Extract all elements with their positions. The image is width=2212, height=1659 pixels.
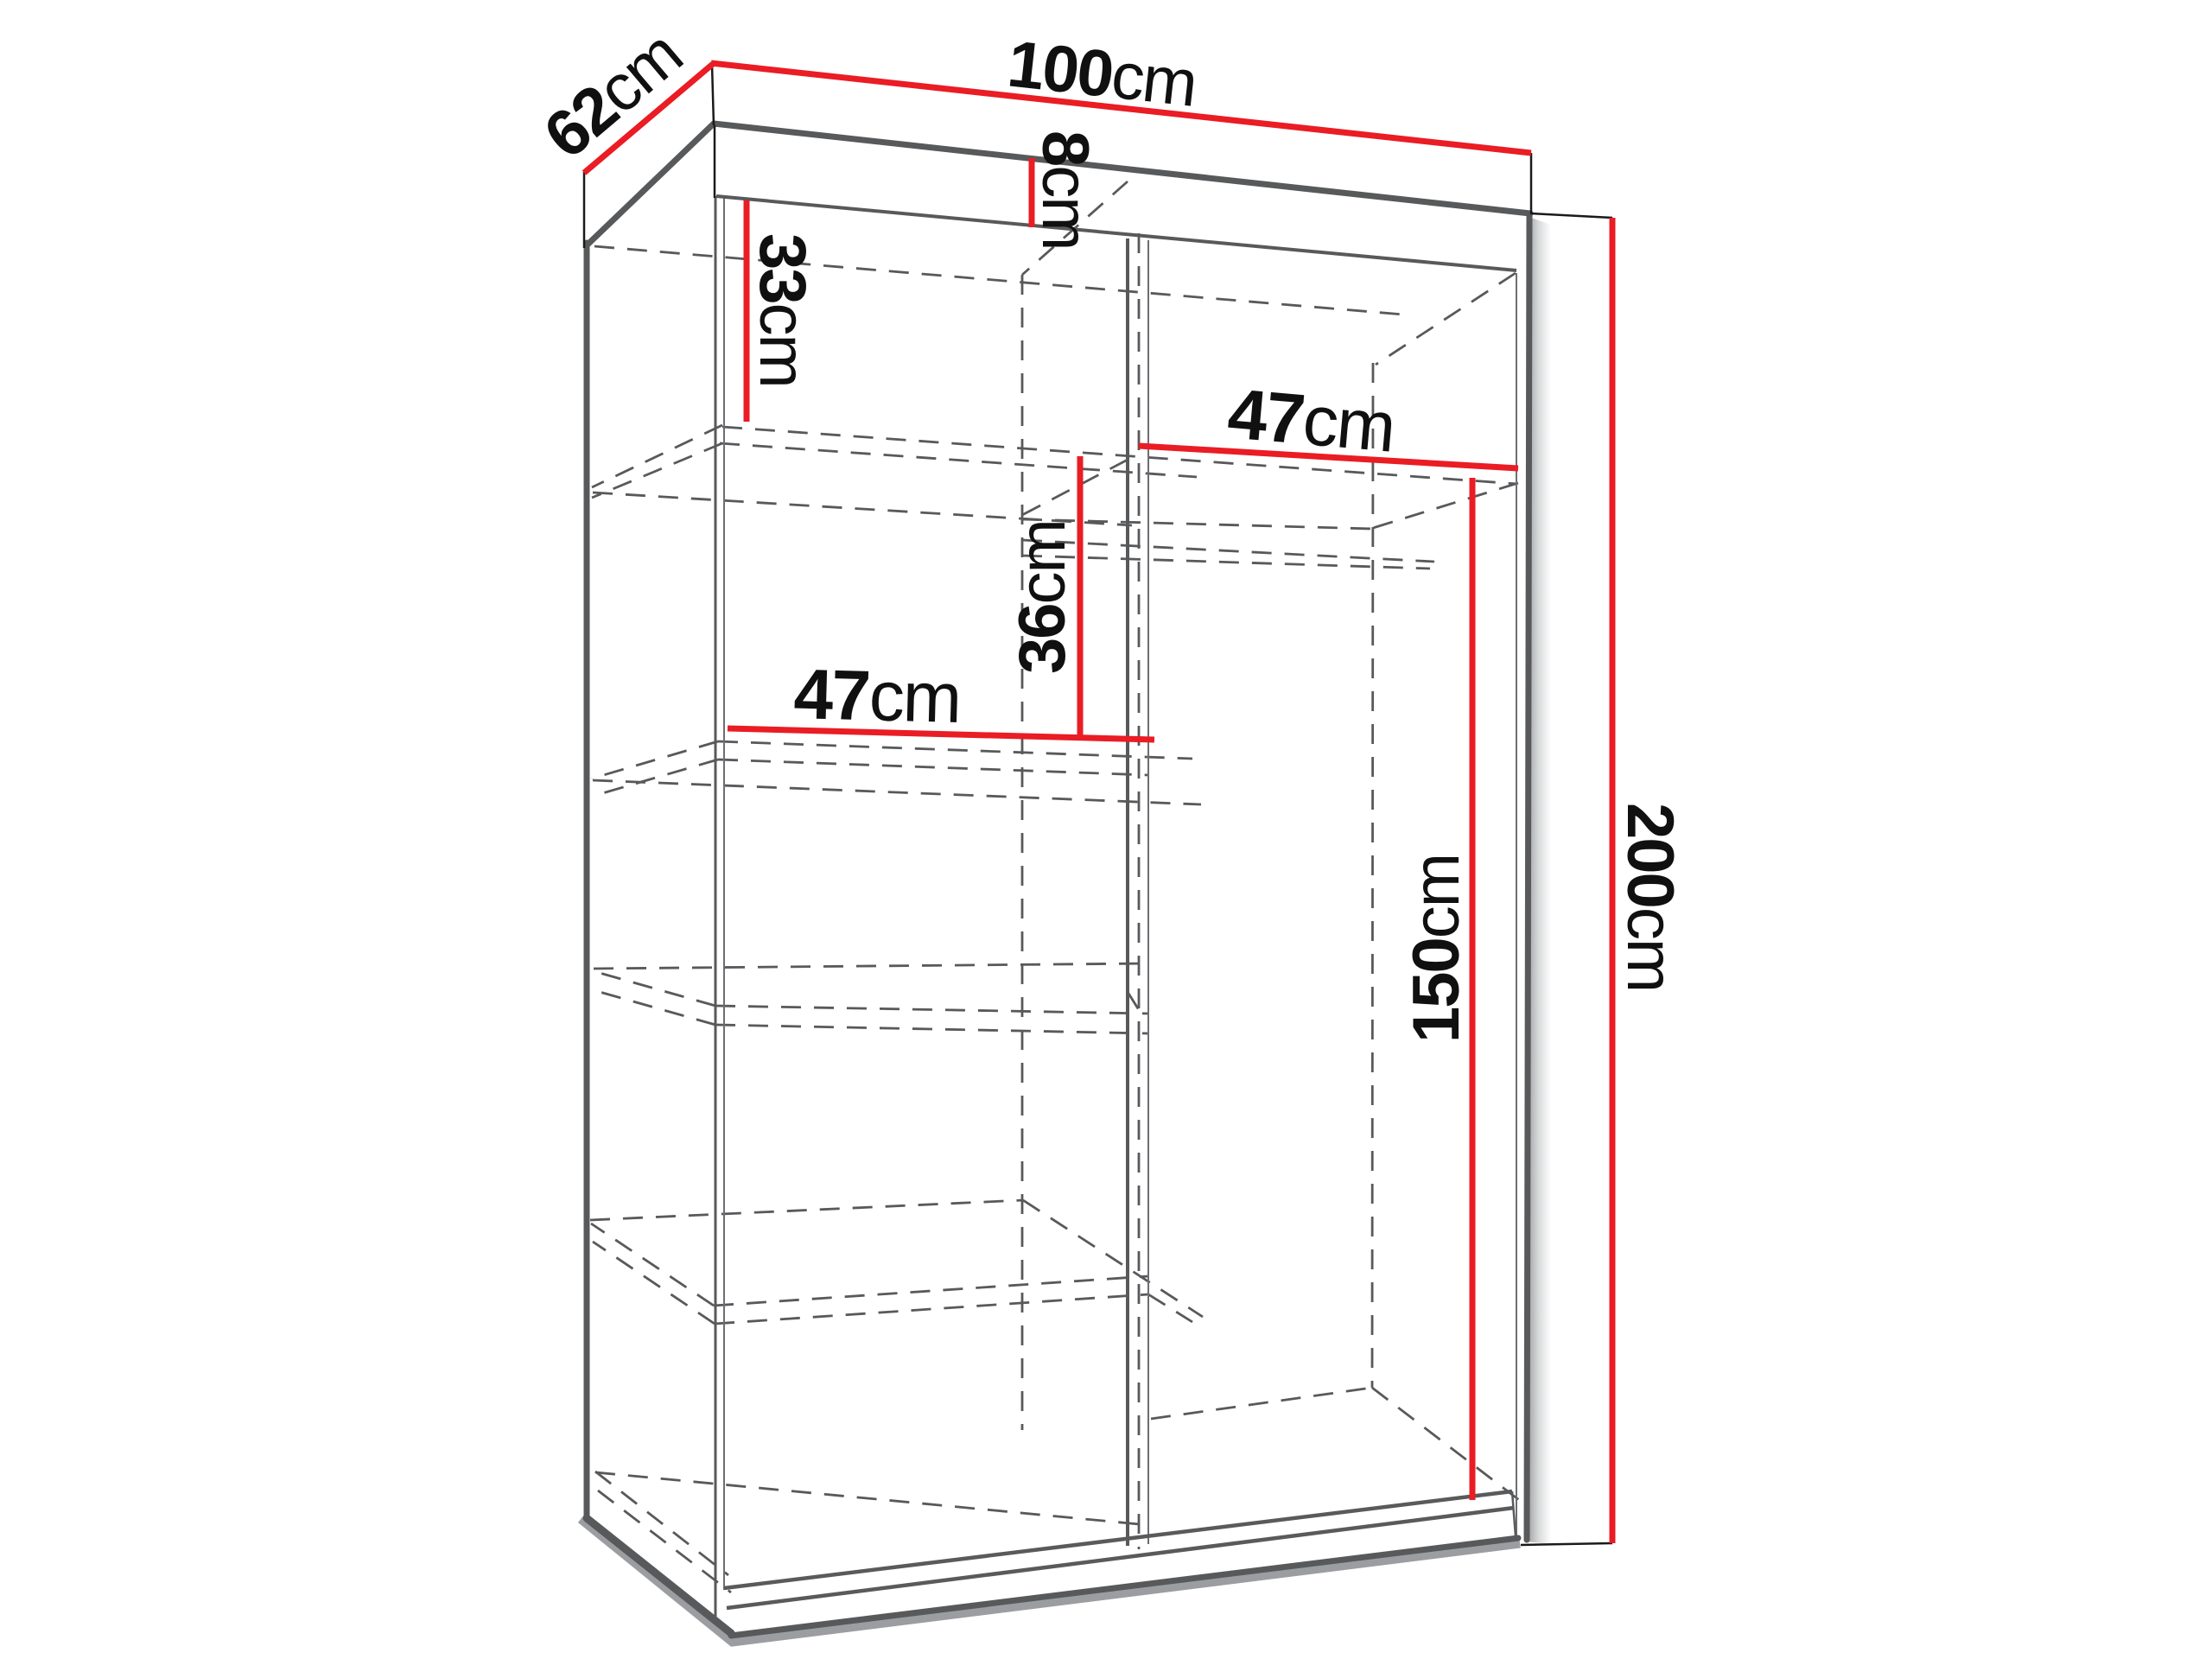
svg-text:8cm: 8cm [1028, 130, 1102, 250]
svg-text:36cm: 36cm [1006, 520, 1079, 674]
svg-text:47cm: 47cm [793, 655, 962, 738]
svg-text:150cm: 150cm [1400, 855, 1473, 1043]
svg-text:200cm: 200cm [1613, 803, 1687, 991]
svg-text:33cm: 33cm [746, 233, 819, 387]
svg-text:47cm: 47cm [1224, 374, 1397, 467]
